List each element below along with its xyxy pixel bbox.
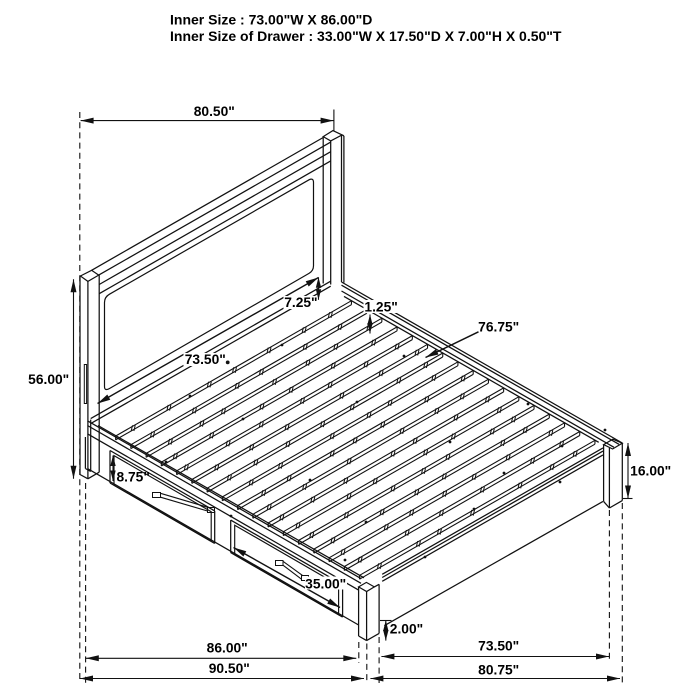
svg-text:35.00": 35.00" — [305, 576, 346, 591]
svg-text:1.25": 1.25" — [364, 299, 397, 314]
svg-text:80.75": 80.75" — [478, 662, 519, 677]
svg-text:8.75": 8.75" — [116, 469, 149, 484]
svg-text:90.50": 90.50" — [209, 661, 250, 676]
svg-text:56.00": 56.00" — [28, 372, 69, 387]
svg-text:Inner Size of Drawer : 33.00"W: Inner Size of Drawer : 33.00"W X 17.50"D… — [170, 28, 562, 44]
svg-text:2.00": 2.00" — [390, 622, 423, 637]
svg-text:7.25": 7.25" — [284, 295, 317, 310]
svg-text:76.75": 76.75" — [478, 320, 519, 335]
svg-text:Inner Size : 73.00"W X 86.00"D: Inner Size : 73.00"W X 86.00"D — [170, 11, 372, 27]
svg-text:80.50": 80.50" — [194, 104, 235, 119]
svg-text:73.50": 73.50" — [185, 352, 226, 367]
svg-text:86.00": 86.00" — [207, 641, 248, 656]
svg-text:73.50": 73.50" — [478, 639, 519, 654]
svg-text:16.00": 16.00" — [630, 463, 671, 478]
